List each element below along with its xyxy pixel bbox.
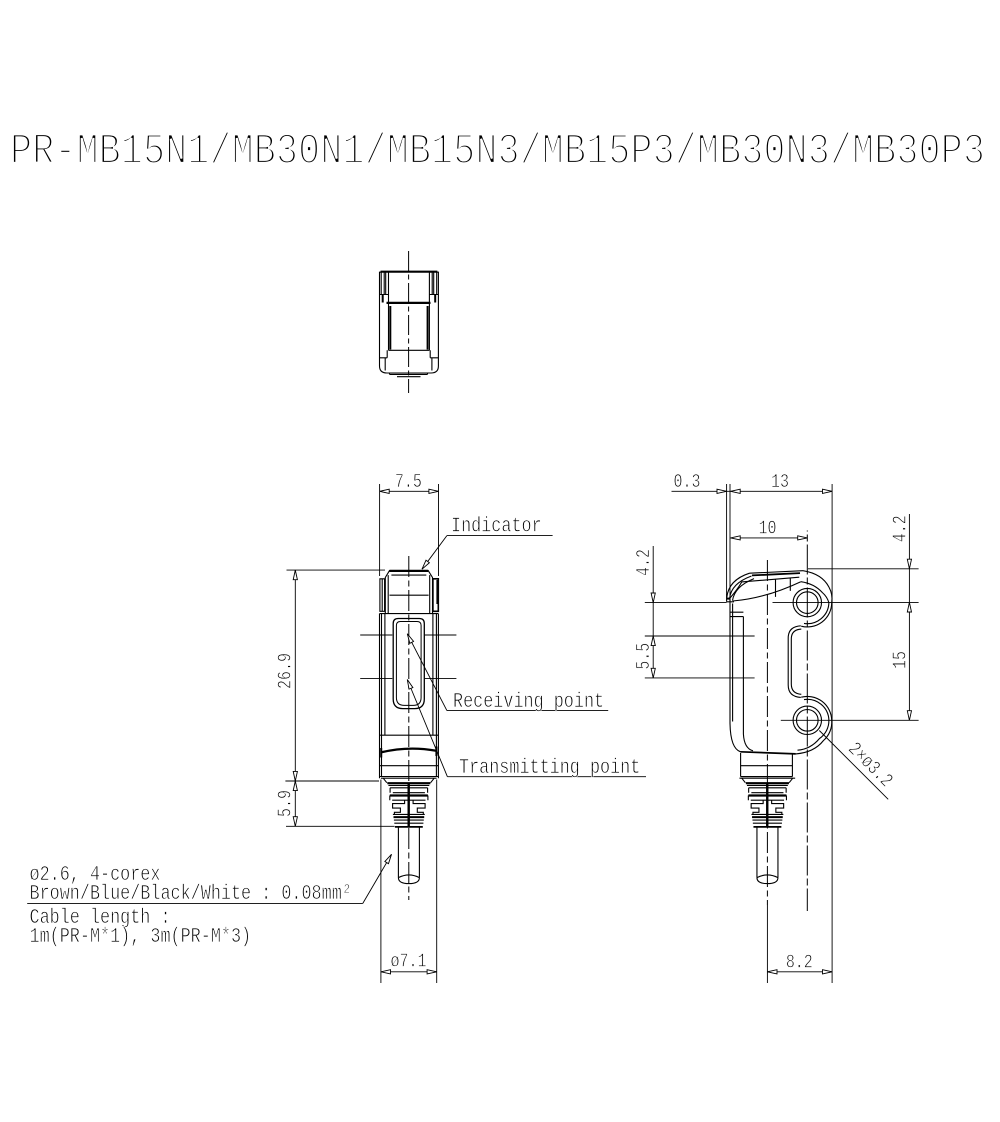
svg-text:7.5: 7.5 <box>395 472 422 493</box>
svg-text:26.9: 26.9 <box>276 653 297 689</box>
svg-text:2×ø3.2: 2×ø3.2 <box>843 739 896 792</box>
svg-text:13: 13 <box>771 472 789 493</box>
svg-text:5.5: 5.5 <box>634 643 655 670</box>
svg-text:15: 15 <box>891 651 912 669</box>
svg-text:5.9: 5.9 <box>276 790 297 817</box>
svg-text:10: 10 <box>759 519 777 540</box>
svg-text:ø7.1: ø7.1 <box>391 952 427 973</box>
svg-text:PR-MB15N1/MB30N1/MB15N3/MB15P3: PR-MB15N1/MB30N1/MB15N3/MB15P3/MB30N3/MB… <box>10 127 985 176</box>
svg-text:Indicator: Indicator <box>451 514 542 538</box>
svg-text:0.3: 0.3 <box>674 472 701 493</box>
svg-text:8.2: 8.2 <box>786 953 813 974</box>
svg-text:Receiving point: Receiving point <box>453 689 604 713</box>
svg-text:4.2: 4.2 <box>634 549 655 576</box>
svg-text:1m(PR-M*1), 3m(PR-M*3): 1m(PR-M*1), 3m(PR-M*3) <box>30 924 252 948</box>
svg-text:Brown/Blue/Black/White : 0.08m: Brown/Blue/Black/White : 0.08mm² <box>30 881 352 905</box>
svg-text:Transmitting point: Transmitting point <box>459 755 640 779</box>
svg-text:4.2: 4.2 <box>891 515 912 542</box>
